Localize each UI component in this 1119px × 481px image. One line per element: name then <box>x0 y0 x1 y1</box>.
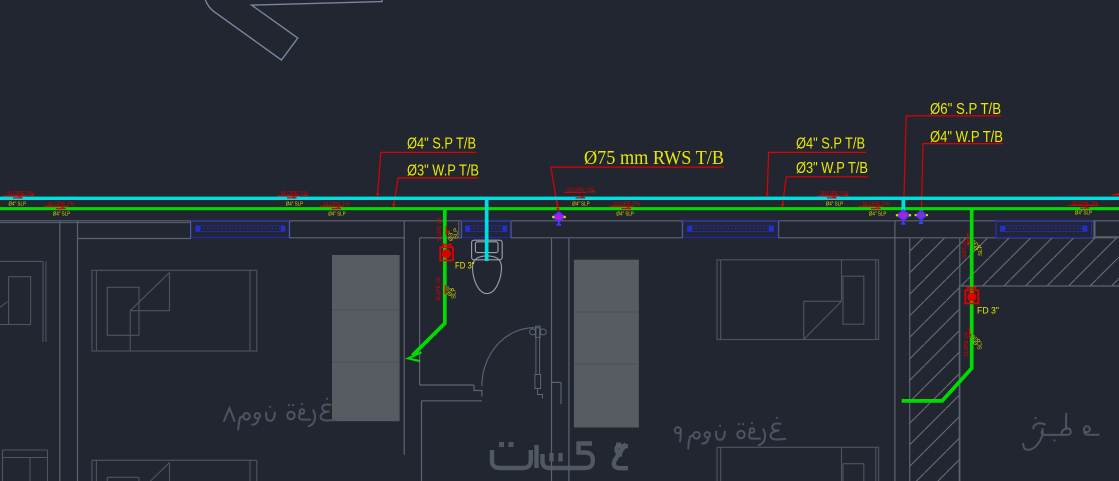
svg-text:Ø4" SLP: Ø4" SLP <box>53 212 71 218</box>
svg-text:Ø4" SLP: Ø4" SLP <box>1075 211 1092 217</box>
svg-text:SLP: SLP <box>978 338 984 349</box>
svg-text:SLP: SLP <box>453 228 459 239</box>
svg-text:Ø3" W.P T/B: Ø3" W.P T/B <box>796 160 868 177</box>
svg-text:Ø4" SLP: Ø4" SLP <box>328 212 346 218</box>
svg-text:Ø75 mm RWS T/B: Ø75 mm RWS T/B <box>584 147 724 169</box>
svg-text:Ø4" SLP: Ø4" SLP <box>616 212 634 218</box>
svg-text:FD 3": FD 3" <box>455 260 475 270</box>
svg-text:SLOPE 1%: SLOPE 1% <box>436 276 442 301</box>
svg-text:Ø4" S.P T/B: Ø4" S.P T/B <box>796 135 865 152</box>
svg-text:Ø4" W.P T/B: Ø4" W.P T/B <box>930 129 1003 146</box>
svg-text:SLP: SLP <box>451 287 457 298</box>
svg-text:SLOPE 1%: SLOPE 1% <box>437 217 443 242</box>
svg-text:Ø4" S.P T/B: Ø4" S.P T/B <box>407 136 476 153</box>
svg-text:Ø4" SLP: Ø4" SLP <box>286 202 304 208</box>
svg-text:SLP: SLP <box>978 244 984 256</box>
svg-text:Ø4" SLP: Ø4" SLP <box>869 212 887 218</box>
svg-text:SLOPE 1%: SLOPE 1% <box>962 240 968 258</box>
svg-text:Ø6" S.P T/B: Ø6" S.P T/B <box>930 101 1001 118</box>
svg-text:Ø4" SLP: Ø4" SLP <box>9 202 27 208</box>
svg-text:Ø3" W.P T/B: Ø3" W.P T/B <box>407 162 479 179</box>
svg-text:Ø4" SLP: Ø4" SLP <box>826 202 844 208</box>
svg-text:FD 3": FD 3" <box>977 306 999 316</box>
svg-text:Ø4" SLP: Ø4" SLP <box>572 202 590 208</box>
